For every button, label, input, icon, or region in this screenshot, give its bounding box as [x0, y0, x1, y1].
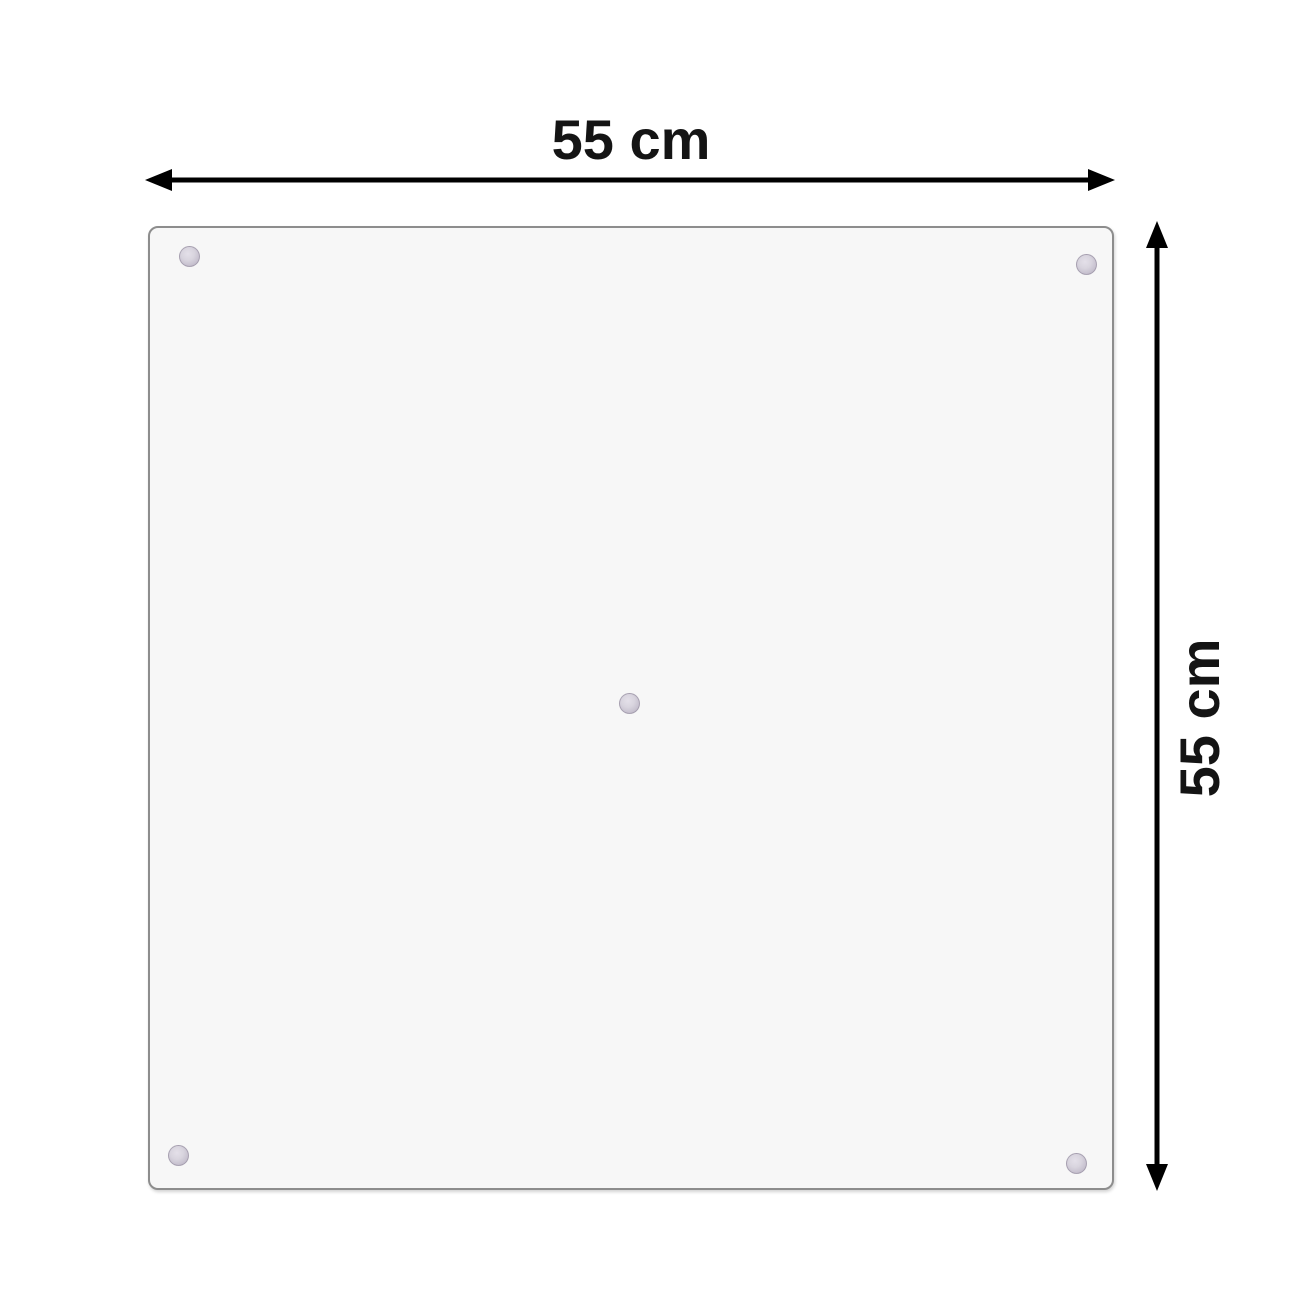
arrow-right-head-icon: [1088, 169, 1115, 191]
suction-cup-center-icon: [619, 693, 640, 714]
suction-cup-bottom-left-icon: [168, 1145, 189, 1166]
arrow-down-head-icon: [1146, 1164, 1168, 1191]
width-dimension-arrow: [144, 167, 1116, 193]
height-dimension-label: 55 cm: [1168, 608, 1232, 828]
width-dimension-label: 55 cm: [148, 108, 1114, 172]
dimension-diagram: 55 cm 55 cm: [0, 0, 1300, 1300]
suction-cup-top-right-icon: [1076, 254, 1097, 275]
suction-cup-bottom-right-icon: [1066, 1153, 1087, 1174]
height-dimension-arrow: [1144, 220, 1170, 1192]
arrow-left-head-icon: [145, 169, 172, 191]
suction-cup-top-left-icon: [179, 246, 200, 267]
arrow-up-head-icon: [1146, 221, 1168, 248]
